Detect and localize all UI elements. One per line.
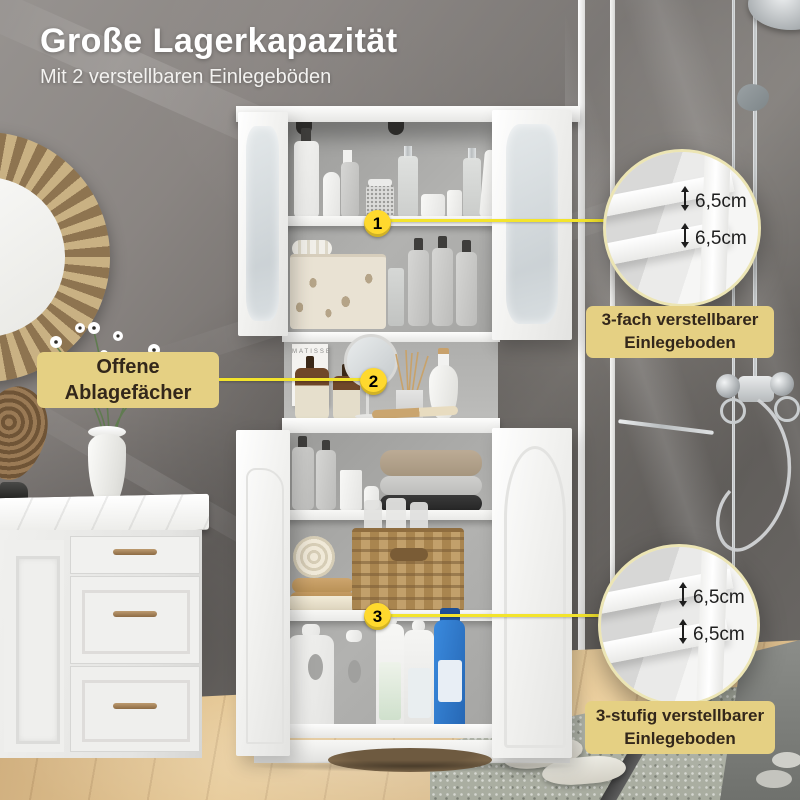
badge-3: 3 — [364, 603, 391, 630]
drawer-handle — [113, 611, 157, 617]
cream-jar — [421, 194, 445, 218]
callout-line: Offene — [96, 354, 159, 380]
shower-knob — [770, 372, 794, 396]
bunny-basket — [290, 254, 386, 329]
arrow-updown-icon — [680, 223, 690, 248]
vanity-drawer — [70, 536, 200, 574]
callout-line-1 — [382, 219, 606, 222]
jug-handle-hole — [348, 660, 361, 683]
measure-label: 6,5cm — [695, 228, 747, 250]
detergent-jug — [330, 640, 372, 730]
product-scene: MATISSE — [0, 0, 800, 800]
vanity-drawer-panel — [82, 680, 190, 742]
rolled-towel — [293, 536, 335, 578]
midshelf-top-board — [282, 332, 500, 342]
measure-label: 6,5cm — [695, 191, 747, 213]
book-title: MATISSE — [292, 349, 328, 355]
gray-pump-bottle — [432, 248, 453, 326]
callout-line: Ablagefächer — [65, 380, 192, 406]
callout-top-adjustable: 3-fach verstellbarer Einlegeboden — [586, 306, 774, 358]
gray-pump-bottle — [408, 250, 429, 326]
vanity-drawer-panel — [82, 590, 190, 654]
badge-2: 2 — [360, 368, 387, 395]
cabinet-floor-board — [284, 724, 498, 738]
bottle-label — [438, 660, 462, 702]
callout-line: Einlegeboden — [624, 332, 735, 355]
callout-line: 3-fach verstellbarer — [602, 309, 759, 332]
callout-bottom-adjustable: 3-stufig verstellbarer Einlegeboden — [585, 701, 775, 754]
cosmetic-tube — [323, 172, 340, 218]
white-box — [340, 470, 362, 510]
shower-hose — [700, 395, 800, 570]
page-title: Große Lagerkapazität — [40, 22, 398, 61]
towel-folded-gray — [380, 476, 482, 495]
gray-pump-bottle — [292, 447, 314, 510]
clear-pump-bottle — [398, 156, 418, 218]
callout-line-2 — [219, 378, 365, 381]
measure-label: 6,5cm — [693, 624, 745, 646]
towel-folded-tan — [380, 450, 482, 476]
bottle-label — [408, 668, 431, 718]
callout-line: Einlegeboden — [624, 728, 735, 751]
shower-frame-bar — [578, 0, 585, 658]
badge-3-number: 3 — [373, 607, 382, 627]
clear-pump-bottle — [463, 158, 481, 218]
bottle-label — [379, 662, 401, 720]
pebble — [756, 770, 792, 788]
vanity-countertop — [0, 494, 209, 535]
detergent-jug — [288, 635, 334, 730]
callout-line: 3-stufig verstellbarer — [596, 705, 764, 728]
page-subtitle: Mit 2 verstellbaren Einlegeböden — [40, 66, 331, 89]
callout-line-3 — [390, 614, 602, 617]
towel-folded-camel — [292, 578, 354, 593]
arrow-updown-icon — [680, 186, 690, 211]
lotion-bottle — [294, 141, 319, 218]
lower-left-door-panel — [246, 468, 284, 744]
towel-folded-cream — [286, 596, 360, 610]
badge-2-number: 2 — [369, 372, 378, 392]
vanity-door-panel — [16, 556, 60, 744]
amber-bottle — [295, 368, 329, 420]
drawer-handle — [113, 703, 157, 709]
cabinet-floor-shadow — [248, 760, 578, 772]
badge-1-number: 1 — [373, 214, 382, 234]
arrow-updown-icon — [678, 619, 688, 644]
arrow-updown-icon — [678, 582, 688, 607]
pebble — [772, 752, 800, 768]
midshelf-bottom-board — [282, 418, 500, 433]
frosted-panel — [506, 124, 558, 324]
callout-open-shelves: Offene Ablagefächer — [37, 352, 219, 408]
dropper-bottle-body — [341, 162, 359, 218]
jug-handle-hole — [308, 654, 323, 680]
wicker-basket — [352, 528, 464, 612]
lower-right-door-panel — [504, 446, 566, 748]
measure-label: 6,5cm — [693, 587, 745, 609]
gray-pump-bottle — [316, 450, 336, 510]
speckled-jar-lid — [368, 179, 392, 186]
frosted-panel — [246, 126, 279, 321]
glass-jar — [388, 268, 404, 326]
basket-handle-slot — [390, 548, 428, 561]
badge-1: 1 — [364, 210, 391, 237]
gray-pump-bottle — [456, 252, 477, 326]
drawer-handle — [113, 549, 157, 555]
small-jar — [447, 190, 462, 218]
